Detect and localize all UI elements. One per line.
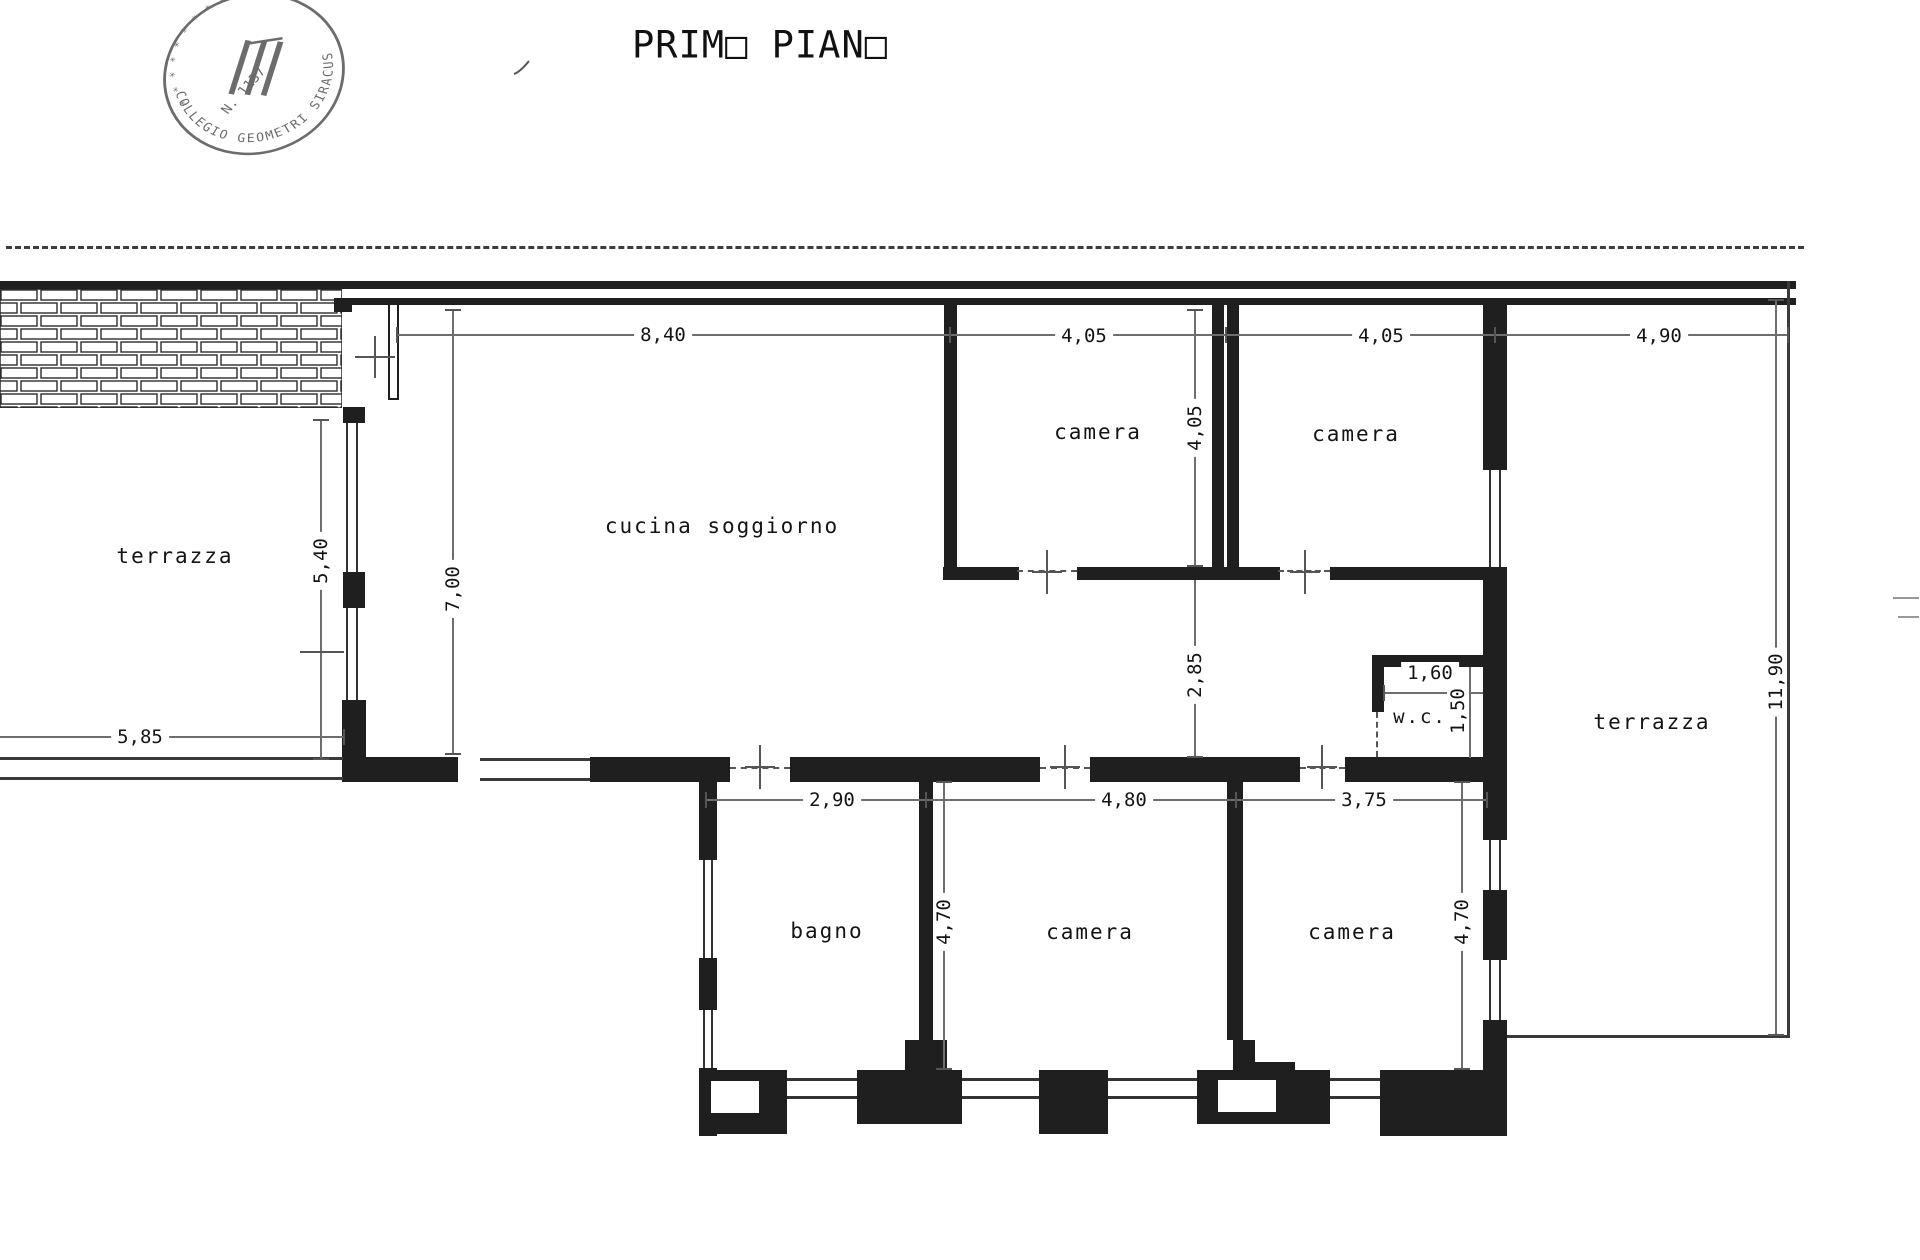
window-glazing	[346, 423, 348, 572]
window-glazing	[1489, 960, 1491, 1020]
dim-label-camera-mid-width: 4,80	[1095, 789, 1153, 811]
dim-tick	[343, 729, 345, 745]
dim-label-depth-left: 4,70	[933, 893, 955, 951]
dim-label-cucina-height: 7,00	[442, 560, 464, 618]
wall-corridor-4	[1345, 757, 1372, 782]
wall-corridor-2	[790, 757, 1040, 782]
window-glazing	[787, 1096, 857, 1099]
dim-tick	[313, 419, 329, 421]
dim-tick	[445, 309, 461, 311]
dim-label-terrace-left-height: 5,40	[310, 532, 332, 590]
wall-top-outer	[0, 281, 1796, 289]
window-glazing	[787, 1078, 857, 1081]
window-glazing	[962, 1096, 1039, 1099]
wall-corridor-1	[590, 757, 730, 782]
dashed-boundary-line	[6, 246, 1804, 249]
window-glazing	[703, 860, 705, 958]
dim-label-bagno-width: 2,90	[803, 789, 861, 811]
window-glazing	[1330, 1096, 1380, 1099]
dim-label-terrace-right-height: 11,90	[1765, 647, 1787, 716]
window-glazing	[356, 423, 358, 572]
dim-tick	[705, 792, 707, 808]
window-glazing	[1499, 960, 1501, 1020]
door-center-tick	[745, 766, 775, 768]
door-center-tick	[1032, 571, 1062, 573]
dim-tick	[936, 1068, 952, 1070]
wall-left-corner-h	[342, 757, 458, 782]
terrace-right-edge	[1787, 281, 1790, 1038]
dim-label-camera1-width: 4,05	[1055, 325, 1113, 347]
wall-bagno-left-1	[699, 782, 717, 860]
dim-tick	[949, 327, 951, 343]
scan-mark	[1898, 616, 1919, 618]
door-center-tick	[355, 356, 395, 358]
wall-divider-bagno-camera	[919, 782, 933, 1040]
dim-label-wc-height: 1,50	[1447, 682, 1469, 740]
surveyor-stamp: COLLEGIO GEOMETRI SIRACUSA ✳ ✳ ✳ ✳ ✳ ✳ ✳…	[139, 0, 370, 181]
dim-tick	[925, 792, 927, 808]
room-label-cucina: cucina soggiorno	[605, 514, 839, 538]
terrace-left-edge-1	[0, 757, 343, 760]
dim-tick	[1768, 299, 1784, 301]
wall-left-pier	[343, 572, 365, 608]
window-glazing	[1108, 1078, 1197, 1081]
door-dash-wc	[1376, 712, 1378, 757]
scan-mark	[1893, 597, 1919, 599]
window-glazing	[711, 860, 713, 958]
dim-tick	[445, 753, 461, 755]
dim-line-cucina-height	[452, 310, 454, 755]
window-glazing	[962, 1078, 1039, 1081]
entry-door-leaf	[388, 303, 399, 400]
dim-tick	[1187, 756, 1203, 758]
dim-tick	[1494, 327, 1496, 343]
threshold-notch-2	[1218, 1080, 1276, 1112]
window-glazing	[711, 1010, 713, 1068]
room-label-camera-bottom-right: camera	[1308, 920, 1396, 944]
wall-bottom-pier-2	[857, 1070, 962, 1124]
dim-tick	[396, 327, 398, 343]
dim-label-camera2-width: 4,05	[1352, 325, 1410, 347]
window-glazing	[346, 608, 348, 700]
dim-tick	[1454, 1068, 1470, 1070]
dim-tick	[936, 781, 952, 783]
dim-tick	[1454, 781, 1470, 783]
window-glazing	[703, 1010, 705, 1068]
wall-entry-cap	[334, 298, 352, 312]
wall-right-lower2	[1483, 890, 1507, 960]
door-center-tick	[1307, 766, 1337, 768]
dim-tick	[1187, 565, 1203, 567]
stamp-number: N. 1137	[218, 65, 270, 117]
room-label-camera-top-left: camera	[1054, 420, 1142, 444]
dim-tick	[1787, 327, 1789, 343]
wall-corridor-3	[1090, 757, 1300, 782]
dim-label-depth-right: 4,70	[1451, 893, 1473, 951]
wall-wc-left	[1372, 655, 1384, 712]
dim-tick	[300, 651, 344, 653]
page-title: PRIM□ PIAN□	[632, 24, 888, 67]
dim-tick	[1486, 792, 1488, 808]
window-glazing	[356, 608, 358, 700]
corridor-glazing-1	[480, 758, 590, 761]
door-center-tick	[1050, 766, 1080, 768]
dim-label-terrace-left-width: 5,85	[111, 726, 169, 748]
dim-tick	[1235, 792, 1237, 808]
brick-hatch	[0, 289, 342, 408]
dim-label-camera-right-width: 3,75	[1335, 789, 1393, 811]
terrace-left-edge-2	[0, 777, 343, 780]
wall-corridor-5	[1372, 757, 1507, 782]
wall-camera-divider-a	[1212, 305, 1224, 580]
window-glazing	[1489, 470, 1491, 567]
window-glazing	[1330, 1078, 1380, 1081]
threshold-notch-1	[711, 1081, 759, 1113]
wall-camera1-bottom-right	[1077, 567, 1240, 580]
terrace-right-bottom	[1507, 1035, 1790, 1038]
room-label-terrazza-right: terrazza	[1593, 710, 1710, 734]
wall-right-lower1	[1483, 782, 1507, 840]
floor-plan: PRIM□ PIAN□ COLLEGIO GEOMETRI SIRACUSA ✳…	[0, 0, 1920, 1260]
window-glazing	[1499, 470, 1501, 567]
dim-label-camera1-height: 4,05	[1184, 399, 1206, 457]
wall-camera2-bottom-right	[1330, 567, 1507, 580]
dim-tick	[1187, 309, 1203, 311]
wall-camera-divider-b	[1227, 305, 1239, 580]
wall-camera1-bottom-left	[943, 567, 1019, 580]
window-glazing	[1489, 840, 1491, 890]
wall-left-sill	[343, 407, 365, 423]
window-glazing	[1108, 1096, 1197, 1099]
room-label-bagno: bagno	[790, 919, 863, 943]
wall-bottom-pier-5	[1380, 1070, 1507, 1136]
wall-right-mid	[1483, 567, 1507, 782]
dim-label-wc-width: 1,60	[1401, 662, 1459, 684]
window-glazing	[1499, 840, 1501, 890]
room-label-camera-top-right: camera	[1312, 422, 1400, 446]
dim-label-cucina-width: 8,40	[634, 324, 692, 346]
room-label-wc: w.c.	[1393, 706, 1447, 728]
dim-line-wc-height	[1469, 667, 1471, 758]
dim-label-terrace-right-width: 4,90	[1630, 325, 1688, 347]
dim-line-terrace-left-height	[320, 420, 322, 760]
dim-tick	[313, 758, 329, 760]
dim-tick	[1383, 685, 1385, 701]
wall-bagno-left-2	[699, 958, 717, 1010]
pen-mark	[512, 58, 532, 78]
dim-tick	[1768, 1034, 1784, 1036]
dim-label-corridor: 2,85	[1184, 646, 1206, 704]
wall-bottom-pier-3	[1039, 1070, 1108, 1134]
wall-top-inner	[345, 298, 1796, 305]
wall-camera2-bottom-left	[1240, 567, 1280, 580]
dim-tick	[1225, 327, 1227, 343]
wall-camera1-left	[944, 305, 957, 580]
room-label-terrazza-left: terrazza	[116, 544, 233, 568]
room-label-camera-bottom-mid: camera	[1046, 920, 1134, 944]
corridor-glazing-2	[480, 778, 590, 781]
dim-line-terrace-left-width	[0, 736, 345, 738]
door-center-tick	[1290, 571, 1320, 573]
wall-divider-camera-camera	[1227, 782, 1243, 1040]
